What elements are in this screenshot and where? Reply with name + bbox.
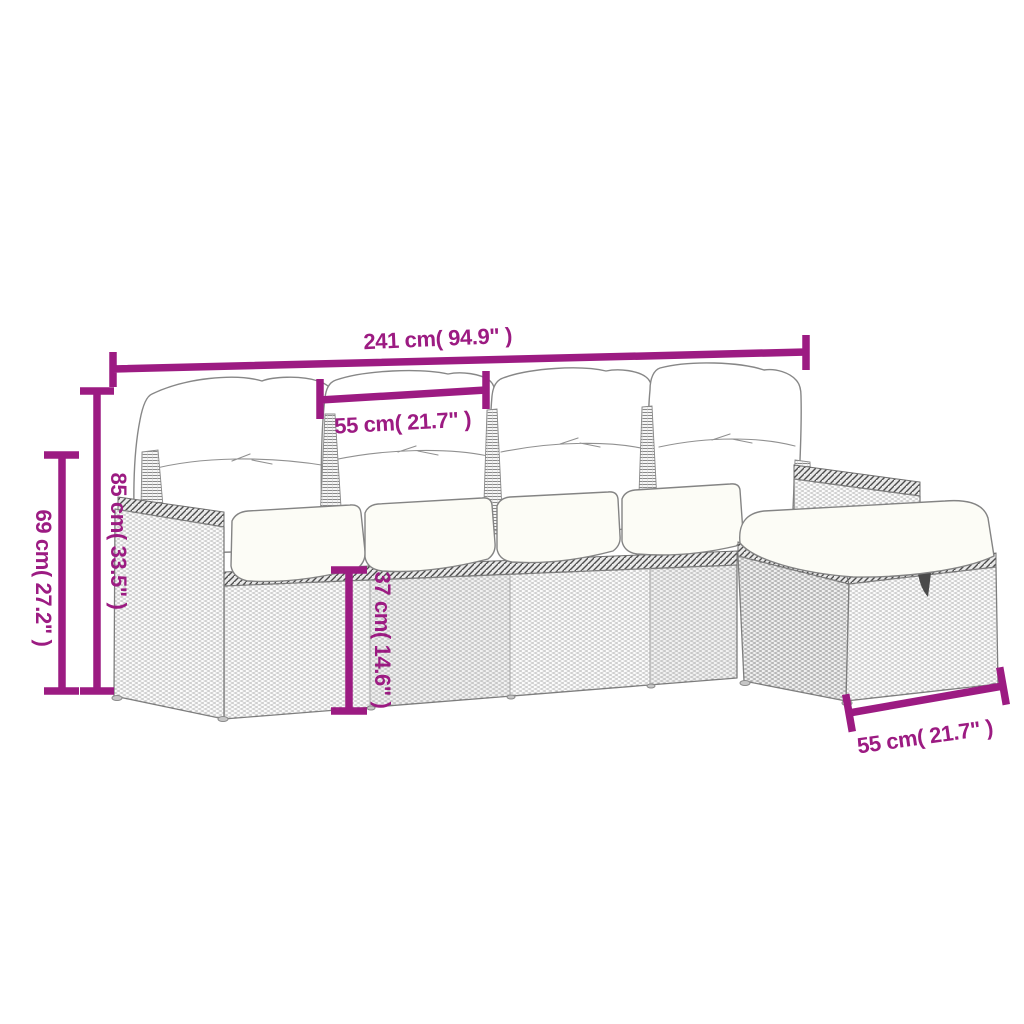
label-total-width: 241 cm( 94.9" ) xyxy=(363,323,513,354)
label-base-height: 37 cm( 14.6" ) xyxy=(370,572,395,709)
seat-cushion-2 xyxy=(365,498,495,572)
footstool xyxy=(738,501,998,701)
label-arm-height: 69 cm( 27.2" ) xyxy=(31,510,56,647)
seat-cushion-4 xyxy=(622,484,743,555)
foot xyxy=(740,681,750,686)
foot xyxy=(218,717,228,722)
foot xyxy=(507,695,515,699)
dimension-arm-height: 69 cm( 27.2" ) xyxy=(31,455,79,691)
foot xyxy=(112,696,122,701)
label-stool-width: 55 cm( 21.7" ) xyxy=(855,715,994,759)
diagram-canvas: 241 cm( 94.9" ) 55 cm( 21.7" ) 85 cm( 33… xyxy=(0,0,1024,1024)
label-back-height: 85 cm( 33.5" ) xyxy=(106,473,131,610)
sofa-line-art xyxy=(112,363,999,722)
product-dimension-diagram: 241 cm( 94.9" ) 55 cm( 21.7" ) 85 cm( 33… xyxy=(0,0,1024,1024)
foot xyxy=(647,684,655,688)
seat-cushion-3 xyxy=(497,492,620,563)
